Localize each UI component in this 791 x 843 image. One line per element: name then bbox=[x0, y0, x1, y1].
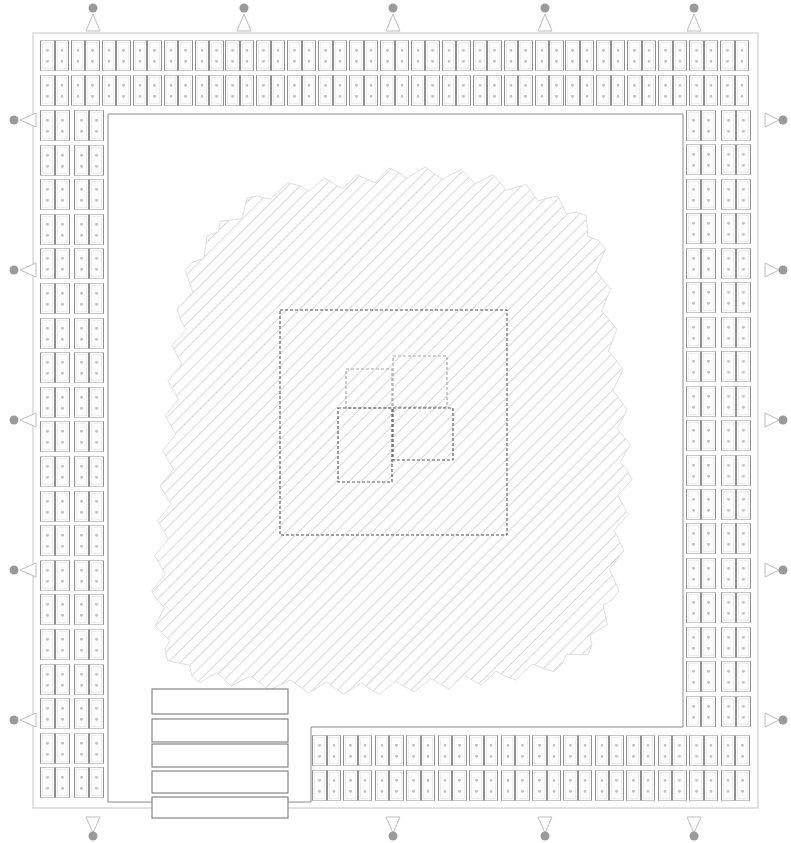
bar-block-1[interactable] bbox=[152, 689, 288, 714]
bar-block-4[interactable] bbox=[152, 771, 288, 793]
bar-block-2[interactable] bbox=[152, 719, 288, 742]
bar-block-3[interactable] bbox=[152, 744, 288, 767]
bar-block-5[interactable] bbox=[152, 797, 288, 818]
die-layout-canvas bbox=[0, 0, 791, 843]
layout-drawing bbox=[0, 0, 791, 843]
